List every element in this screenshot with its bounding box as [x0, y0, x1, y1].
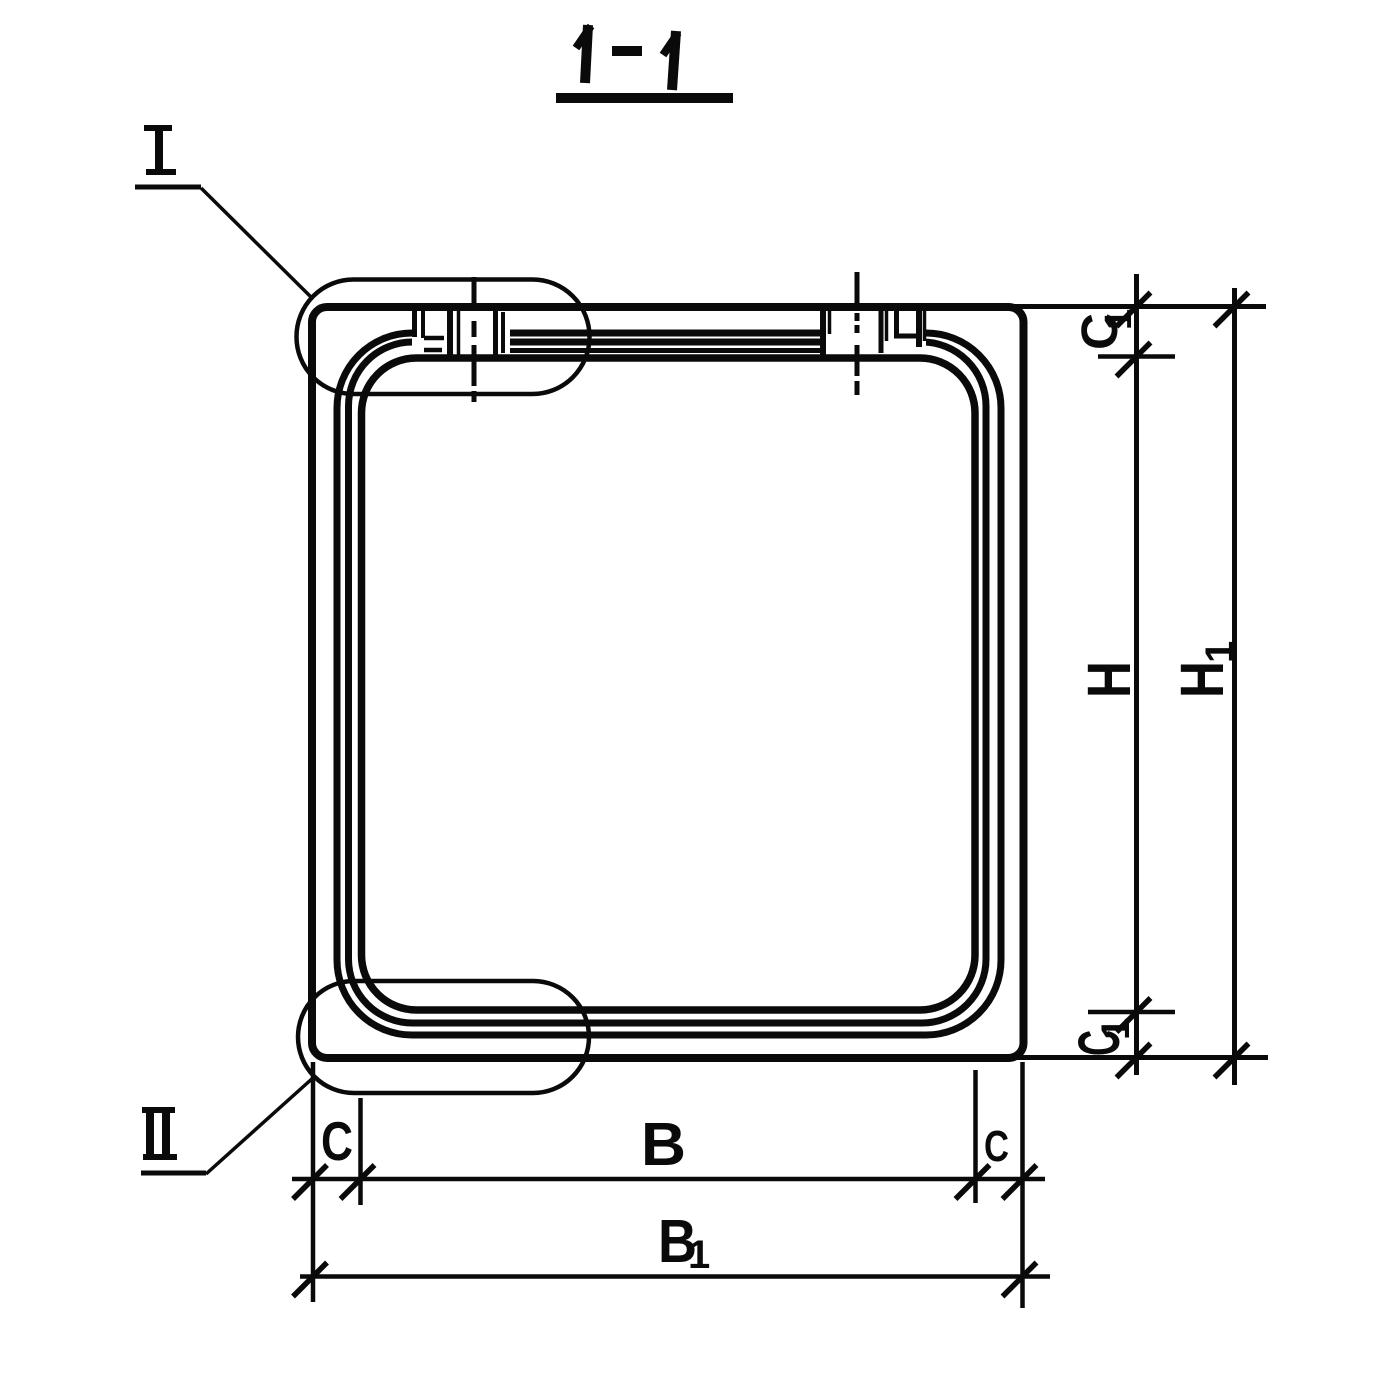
svg-text:C: C — [984, 1122, 1009, 1171]
svg-text:1: 1 — [1198, 641, 1242, 663]
svg-text:1: 1 — [1094, 1018, 1138, 1040]
svg-text:C: C — [321, 1110, 353, 1172]
svg-text:H: H — [1075, 661, 1143, 698]
svg-text:1: 1 — [1098, 309, 1140, 330]
svg-text:H: H — [1168, 661, 1236, 698]
svg-text:B: B — [641, 1110, 686, 1178]
svg-text:1: 1 — [688, 1233, 710, 1277]
